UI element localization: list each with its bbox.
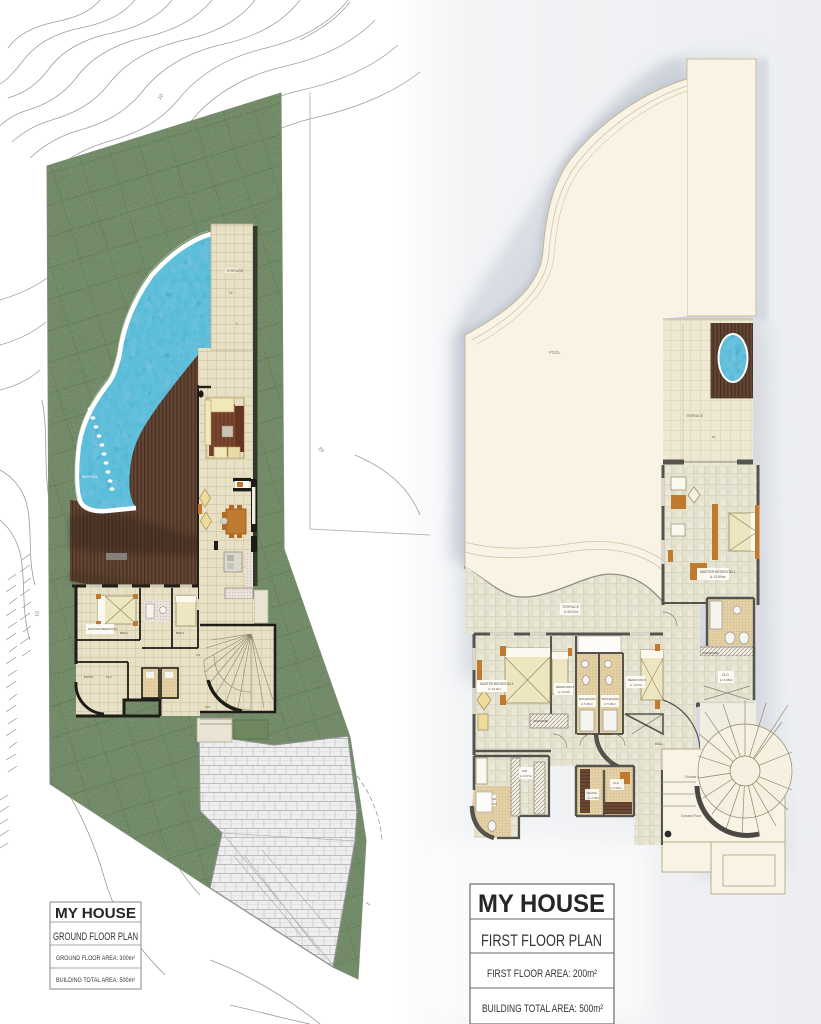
svg-text:ENTRY: ENTRY (84, 675, 94, 679)
svg-text:MASTER BEDROOM 1: MASTER BEDROOM 1 (700, 570, 736, 574)
svg-text:HALL: HALL (655, 742, 663, 746)
svg-text:TERRACE: TERRACE (226, 269, 244, 273)
svg-text:W.C.: W.C. (205, 705, 211, 709)
svg-text:A: 4.75m²: A: 4.75m² (588, 796, 600, 800)
svg-text:WARDROBE: WARDROBE (533, 719, 548, 723)
svg-text:A: 19.50m²: A: 19.50m² (710, 575, 726, 579)
svg-text:BATHROOM: BATHROOM (579, 697, 596, 701)
svg-text:BUILDING TOTAL AREA: 500m²: BUILDING TOTAL AREA: 500m² (56, 977, 136, 984)
svg-text:BATHROOM: BATHROOM (602, 697, 619, 701)
svg-text:MASTER BEDROOM 4: MASTER BEDROOM 4 (480, 682, 514, 686)
svg-text:GROUND FLOOR PLAN: GROUND FLOOR PLAN (53, 931, 138, 943)
svg-text:A: 5.45m²: A: 5.45m² (604, 702, 616, 706)
svg-text:A: 6.07m²: A: 6.07m² (520, 774, 532, 778)
svg-text:SAUNA: SAUNA (587, 791, 597, 795)
svg-text:A: 5.45m²: A: 5.45m² (581, 702, 593, 706)
svg-text:A: 13.0m²: A: 13.0m² (558, 690, 570, 694)
svg-text:WARDROBE: WARDROBE (702, 651, 719, 655)
svg-text:A: 34.0m²: A: 34.0m² (488, 687, 501, 691)
svg-text:FIRST FLOOR AREA: 200m²: FIRST FLOOR AREA: 200m² (487, 968, 597, 980)
svg-text:A: 6.35m²: A: 6.35m² (720, 678, 733, 682)
svg-text:90: 90 (712, 435, 716, 439)
svg-text:SW.POOL: SW.POOL (82, 475, 98, 479)
svg-text:MY HOUSE: MY HOUSE (55, 906, 136, 922)
svg-text:CLO: CLO (106, 675, 113, 679)
svg-text:GROUND FLOOR AREA: 300m²: GROUND FLOOR AREA: 300m² (56, 955, 136, 962)
svg-text:BUILDING TOTAL AREA: 500m²: BUILDING TOTAL AREA: 500m² (482, 1003, 603, 1015)
svg-text:CLO: CLO (613, 781, 620, 785)
svg-text:BEDROOM 4: BEDROOM 4 (556, 685, 574, 689)
svg-text:BED 2: BED 2 (120, 631, 129, 635)
svg-text:14: 14 (229, 291, 233, 295)
svg-text:POOL: POOL (549, 350, 561, 355)
svg-text:Ground Floor: Ground Floor (681, 814, 702, 818)
svg-text:A: 3.12m²: A: 3.12m² (610, 786, 622, 790)
svg-text:A: 13.0m²: A: 13.0m² (630, 683, 642, 687)
svg-text:TERRACE: TERRACE (562, 605, 580, 609)
svg-text:CLO: CLO (722, 673, 729, 677)
svg-text:A:35.00m²: A:35.00m² (564, 610, 579, 614)
svg-text:KID: KID (522, 769, 528, 773)
svg-text:MASTER BEDROOM: MASTER BEDROOM (88, 627, 117, 631)
svg-text:9: 9 (236, 322, 238, 326)
svg-text:BED 3: BED 3 (176, 631, 185, 635)
svg-text:TERRACE: TERRACE (686, 414, 704, 418)
svg-text:FIRST FLOOR PLAN: FIRST FLOOR PLAN (481, 931, 602, 950)
svg-text:BEDROOM 5: BEDROOM 5 (628, 678, 646, 682)
svg-text:MY HOUSE: MY HOUSE (478, 890, 605, 918)
